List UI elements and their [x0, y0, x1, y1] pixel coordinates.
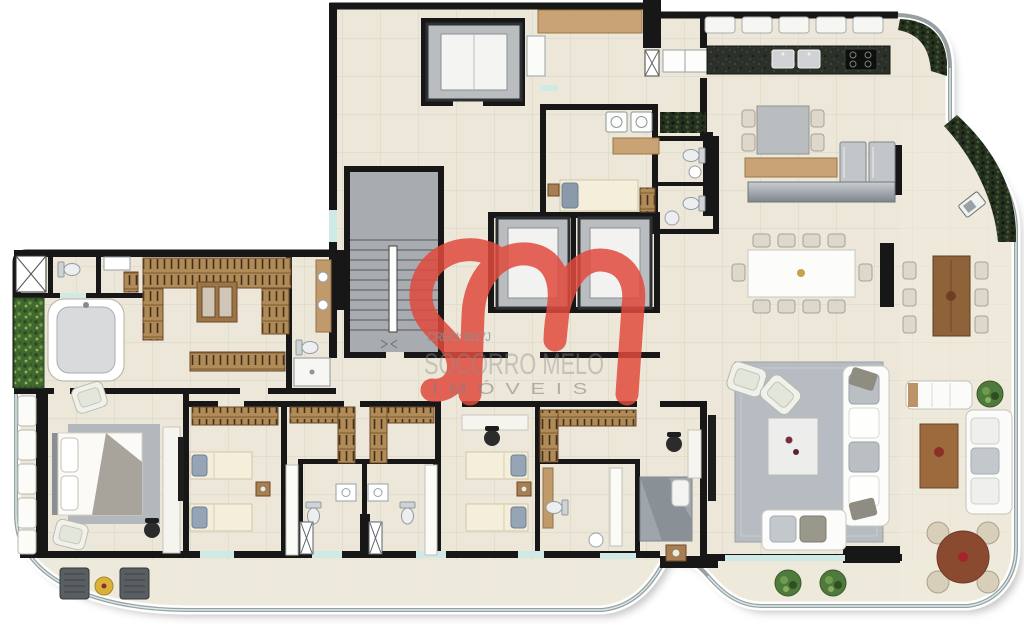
coffee-table — [768, 418, 818, 475]
tv-panel — [708, 415, 716, 501]
kitchen-cabinets — [705, 17, 883, 33]
terrace-dining — [903, 256, 988, 336]
sofa-chaise — [762, 510, 846, 550]
duct-shaft — [645, 50, 659, 76]
washer-icon — [606, 112, 627, 132]
kitchen-island — [745, 158, 837, 177]
toilet-icon — [546, 500, 568, 515]
round-table-set — [927, 522, 999, 593]
cooktop-icon — [845, 49, 877, 70]
plant — [775, 570, 801, 596]
master-desk — [163, 427, 180, 553]
bath-sink — [589, 533, 603, 547]
service-garden — [660, 112, 706, 133]
twin-bed — [466, 504, 528, 531]
corridor-wardrobe — [190, 352, 285, 371]
sofa-main — [843, 366, 889, 526]
twin-bed — [466, 452, 528, 479]
lounger — [120, 568, 149, 599]
decor-bowl — [934, 447, 944, 457]
desk-chair — [144, 518, 160, 538]
living-room — [708, 360, 889, 550]
watermark-name: SOCORRO MELO — [424, 348, 604, 381]
service-counter — [538, 10, 642, 33]
toilet-icon — [400, 502, 415, 524]
master-bed — [52, 433, 142, 515]
service-elevator — [427, 24, 521, 100]
double-bed-gray — [640, 477, 692, 541]
bath-sink — [368, 484, 388, 501]
terrace-sofa — [966, 410, 1012, 514]
toilet-icon — [306, 502, 321, 524]
desk-chair — [666, 432, 682, 452]
plant — [820, 570, 846, 596]
floorplan-image: CRECI: 9317J SOCORRO MELO IMÓVEIS — [0, 0, 1024, 628]
lounger — [60, 568, 89, 599]
master-bath-tub — [14, 298, 124, 388]
table-centerpiece — [797, 269, 805, 277]
floorplan-canvas: CRECI: 9317J SOCORRO MELO IMÓVEIS — [0, 0, 1024, 628]
sun-lounger — [906, 381, 972, 409]
stair-handrail — [389, 246, 397, 332]
sideboard — [748, 182, 895, 202]
twin-bed — [190, 452, 252, 479]
suite3-desk — [688, 430, 701, 478]
closet-island — [197, 282, 237, 322]
suite1-wardrobe — [192, 407, 278, 425]
washer-icon — [631, 112, 652, 132]
creci-label: CRECI: 9317J — [427, 332, 491, 344]
maid-wardrobe — [640, 188, 655, 212]
plant — [977, 381, 1003, 407]
tv-panel — [178, 437, 184, 501]
wardrobe-column — [18, 396, 36, 554]
shower-door — [369, 522, 382, 554]
bath-sink — [336, 484, 356, 501]
twin-bed — [190, 504, 252, 531]
shower-door — [300, 522, 313, 554]
watermark-subtitle: IMÓVEIS — [432, 379, 598, 398]
desk-chair — [484, 426, 500, 446]
vertical-garden — [14, 298, 44, 388]
